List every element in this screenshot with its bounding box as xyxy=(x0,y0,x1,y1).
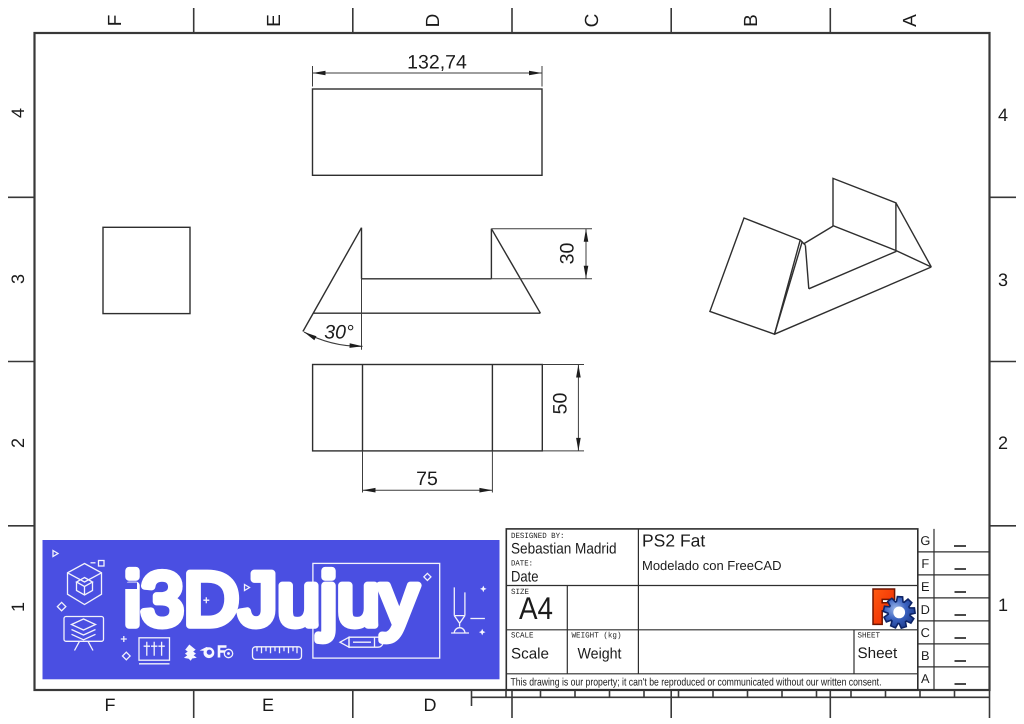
svg-text:D: D xyxy=(423,14,444,28)
svg-text:A4: A4 xyxy=(519,590,553,626)
svg-text:75: 75 xyxy=(416,468,438,490)
svg-text:C: C xyxy=(582,14,603,28)
svg-text:i3DJujuy: i3DJujuy xyxy=(124,557,419,641)
svg-text:50: 50 xyxy=(550,393,572,415)
svg-text:B: B xyxy=(741,14,762,27)
svg-text:132,74: 132,74 xyxy=(407,52,467,74)
svg-text:2: 2 xyxy=(8,438,28,448)
svg-text:D: D xyxy=(424,695,437,715)
svg-text:F: F xyxy=(105,695,116,715)
svg-text:F: F xyxy=(921,556,929,571)
svg-text:Weight: Weight xyxy=(578,646,623,663)
svg-text:Date: Date xyxy=(511,568,539,585)
svg-text:B: B xyxy=(921,648,930,663)
svg-text:E: E xyxy=(264,14,285,27)
svg-text:E: E xyxy=(262,695,274,715)
svg-text:Scale: Scale xyxy=(511,646,549,663)
svg-text:D: D xyxy=(921,602,930,617)
svg-text:SHEET: SHEET xyxy=(858,632,881,641)
svg-text:Sebastian Madrid: Sebastian Madrid xyxy=(511,541,617,558)
svg-text:F: F xyxy=(105,15,126,27)
svg-text:3: 3 xyxy=(8,274,28,284)
svg-text:4: 4 xyxy=(8,108,28,118)
svg-text:4: 4 xyxy=(998,105,1008,125)
svg-text:SCALE: SCALE xyxy=(511,632,534,641)
svg-text:A: A xyxy=(900,14,921,27)
svg-text:2: 2 xyxy=(998,433,1008,453)
svg-text:C: C xyxy=(921,625,930,640)
svg-text:Modelado con FreeCAD: Modelado con FreeCAD xyxy=(642,558,781,573)
svg-text:DATE:: DATE: xyxy=(511,559,533,568)
svg-text:1: 1 xyxy=(998,595,1008,615)
svg-text:1: 1 xyxy=(8,602,28,612)
svg-text:Sheet: Sheet xyxy=(858,645,898,662)
svg-text:30: 30 xyxy=(557,243,579,265)
svg-text:PS2 Fat: PS2 Fat xyxy=(642,530,705,550)
svg-text:This drawing is our property;: This drawing is our property; it can't b… xyxy=(511,677,882,689)
svg-text:A: A xyxy=(921,671,930,686)
svg-text:DESIGNED BY:: DESIGNED BY: xyxy=(511,532,565,541)
svg-text:WEIGHT (kg): WEIGHT (kg) xyxy=(572,632,622,641)
svg-text:G: G xyxy=(920,533,930,548)
svg-text:30°: 30° xyxy=(324,322,354,344)
svg-text:3: 3 xyxy=(998,270,1008,290)
svg-text:E: E xyxy=(921,579,930,594)
